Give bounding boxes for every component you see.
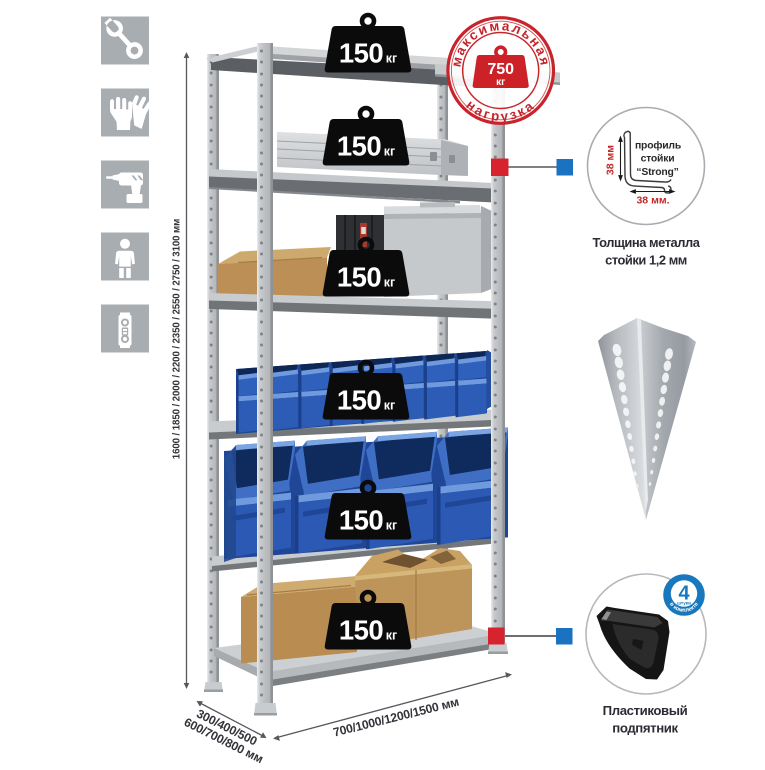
svg-text:профиль: профиль <box>635 140 681 152</box>
svg-text:Пластиковый: Пластиковый <box>603 703 688 718</box>
svg-text:“Strong”: “Strong” <box>636 167 678 178</box>
svg-text:1600 / 1850 / 2000 / 2200 / 23: 1600 / 1850 / 2000 / 2200 / 2350 / 2550 … <box>172 219 183 459</box>
svg-text:стойки: стойки <box>641 154 675 165</box>
svg-text:подпятник: подпятник <box>612 721 678 736</box>
svg-text:стойки 1,2 мм: стойки 1,2 мм <box>605 253 687 268</box>
svg-text:Толщина металла: Толщина металла <box>593 235 701 250</box>
svg-text:38 мм.: 38 мм. <box>636 195 669 207</box>
svg-text:кг: кг <box>496 77 505 88</box>
svg-text:38 мм: 38 мм <box>605 145 617 175</box>
svg-text:штуки: штуки <box>677 601 691 606</box>
svg-text:750: 750 <box>487 61 514 78</box>
